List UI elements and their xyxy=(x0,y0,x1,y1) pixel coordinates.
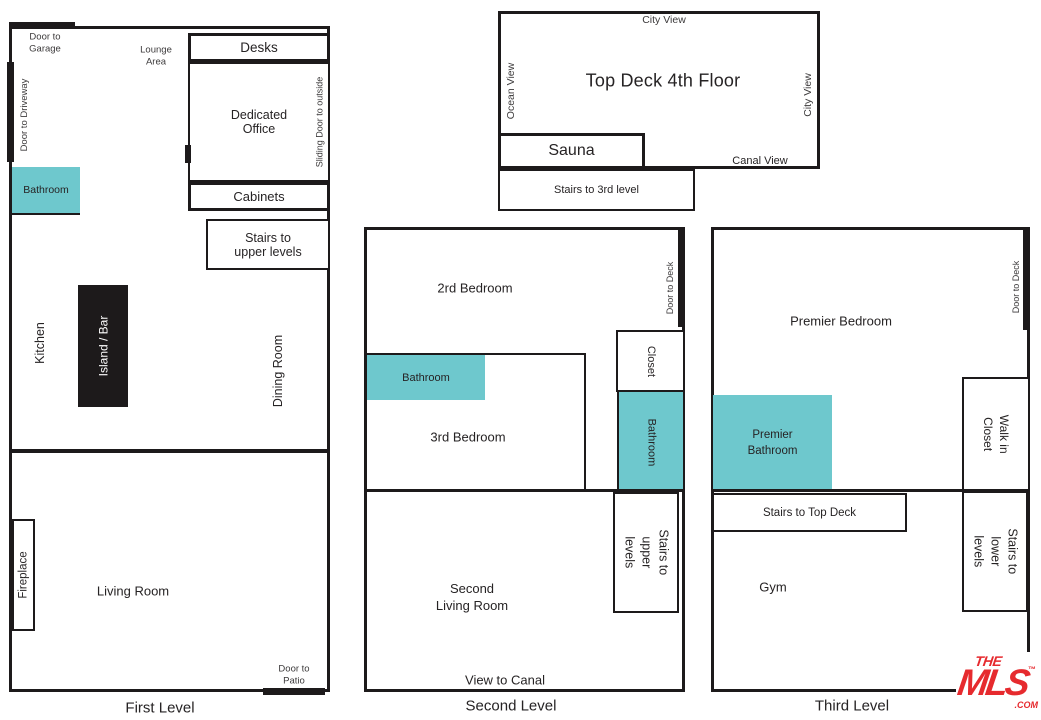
city-view-right-label: City View xyxy=(802,73,816,117)
fireplace: Fireplace xyxy=(12,519,35,631)
office-door-marker xyxy=(185,145,191,163)
dedicated-office-label: Dedicated Office xyxy=(231,108,287,136)
door-to-garage-marker xyxy=(9,22,75,29)
stairs-3rd-level-label: Stairs to 3rd level xyxy=(554,184,639,196)
stairs-lower-label: Stairs to lower levels xyxy=(970,521,1021,583)
door-to-deck-marker-l3 xyxy=(1023,227,1030,330)
stairs-upper-label-l2: Stairs to upper levels xyxy=(621,522,672,584)
desks-room: Desks xyxy=(188,33,330,62)
ocean-view-label: Ocean View xyxy=(505,63,519,119)
dining-room-label: Dining Room xyxy=(270,335,286,407)
mls-logo-com: .COM xyxy=(1015,700,1039,710)
door-to-patio-label: Door to Patio xyxy=(278,664,309,689)
sauna-label: Sauna xyxy=(548,142,594,160)
gym-label: Gym xyxy=(759,580,786,597)
premier-bathroom: Premier Bathroom xyxy=(713,395,832,491)
first-level-caption: First Level xyxy=(125,698,194,718)
bedroom-3-label: 3rd Bedroom xyxy=(430,430,505,447)
stairs-upper-room-l1: Stairs to upper levels xyxy=(206,219,330,270)
walk-in-closet-label: Walk in Closet xyxy=(980,402,1012,466)
stairs-lower-room: Stairs to lower levels xyxy=(962,491,1028,612)
premier-bathroom-label: Premier Bathroom xyxy=(748,427,798,459)
door-to-driveway-label: Door to Driveway xyxy=(19,79,31,152)
door-to-deck-label-l2: Door to Deck xyxy=(665,262,677,315)
mls-logo-mls: MLS xyxy=(955,664,1029,701)
second-level-caption: Second Level xyxy=(466,696,557,716)
fireplace-label: Fireplace xyxy=(18,551,30,598)
desks-label: Desks xyxy=(240,40,278,55)
stairs-upper-room-l2: Stairs to upper levels xyxy=(613,492,679,613)
stairs-upper-label-l1: Stairs to upper levels xyxy=(234,231,301,259)
second-living-room-label: Second Living Room xyxy=(436,581,508,615)
closet-l2: Closet xyxy=(616,330,685,392)
mls-logo: THE MLS ™ .COM xyxy=(956,652,1038,714)
door-to-driveway-marker xyxy=(7,62,14,162)
top-deck-title: Top Deck 4th Floor xyxy=(586,69,741,92)
stairs-top-deck-room: Stairs to Top Deck xyxy=(712,493,907,532)
floor-plan-canvas: Door to Garage Lounge Area Door to Drive… xyxy=(0,0,1041,720)
living-room-label: Living Room xyxy=(97,584,169,601)
door-to-deck-marker-l2 xyxy=(678,227,685,327)
closet-l2-label: Closet xyxy=(643,345,658,376)
sliding-door-label: Sliding Door to outside xyxy=(315,77,325,168)
bedroom-2-label: 2rd Bedroom xyxy=(437,281,512,298)
bathroom-l1: Bathroom xyxy=(12,167,80,215)
bathroom-side-l2: Bathroom xyxy=(617,392,683,492)
island-bar-label: Island / Bar xyxy=(96,316,110,377)
canal-view-label: Canal View xyxy=(732,154,787,168)
cabinets-label: Cabinets xyxy=(233,189,284,204)
door-to-deck-label-l3: Door to Deck xyxy=(1011,261,1023,314)
sauna-room: Sauna xyxy=(498,133,645,169)
third-level-caption: Third Level xyxy=(815,696,889,716)
bathroom-side-l2-label: Bathroom xyxy=(644,418,659,466)
bathroom-l1-label: Bathroom xyxy=(23,184,69,196)
bathroom-main-l2: Bathroom xyxy=(367,355,485,400)
door-to-patio-marker xyxy=(263,688,325,695)
island-bar: Island / Bar xyxy=(78,285,128,407)
view-to-canal-label: View to Canal xyxy=(465,673,545,690)
bedroom-3-right-wall xyxy=(584,353,586,492)
lounge-area-label: Lounge Area xyxy=(140,45,172,70)
bathroom-main-l2-label: Bathroom xyxy=(402,372,450,384)
cabinets-room: Cabinets xyxy=(188,182,330,211)
dedicated-office-room: Dedicated Office Sliding Door to outside xyxy=(188,62,330,182)
city-view-top-label: City View xyxy=(642,14,686,28)
stairs-3rd-level-room: Stairs to 3rd level xyxy=(498,169,695,211)
premier-bedroom-label: Premier Bedroom xyxy=(790,314,892,331)
mls-logo-tm: ™ xyxy=(1028,665,1036,674)
door-to-garage-label: Door to Garage xyxy=(29,32,61,57)
living-room-top-wall xyxy=(9,449,330,453)
stairs-top-deck-label: Stairs to Top Deck xyxy=(763,507,856,519)
walk-in-closet: Walk in Closet xyxy=(962,377,1030,491)
kitchen-label: Kitchen xyxy=(32,322,48,364)
